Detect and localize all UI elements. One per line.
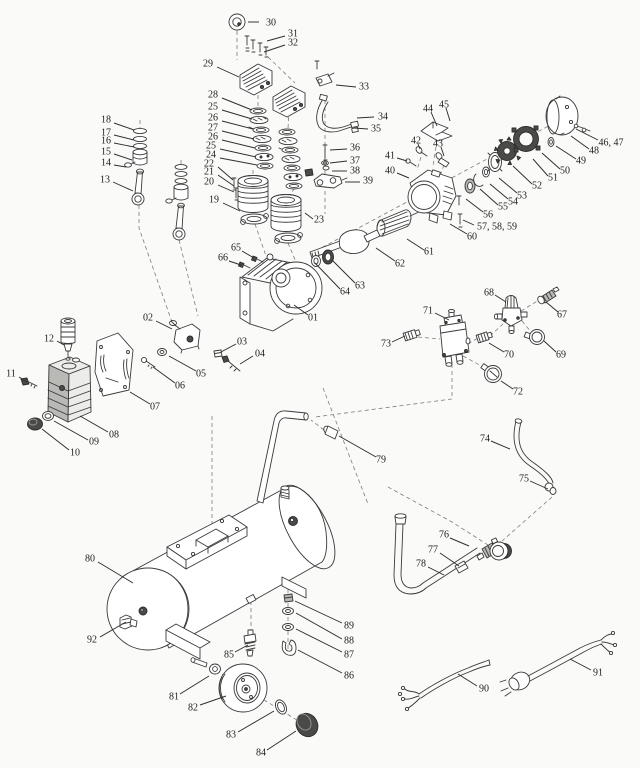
part-label: 12 xyxy=(44,333,54,344)
part-label: 04 xyxy=(255,348,265,359)
part-label: 07 xyxy=(150,401,160,412)
part-10-cap xyxy=(28,418,43,430)
part-03-nut xyxy=(214,350,222,357)
leader-line-20 xyxy=(218,185,234,192)
leader-line-63 xyxy=(332,260,355,283)
part-label: 48 xyxy=(589,145,599,156)
part-label: 45 xyxy=(439,99,449,110)
leader-line-36 xyxy=(330,149,347,150)
part-label: 03 xyxy=(237,336,247,347)
parts-20-21-22-bolts xyxy=(232,178,238,200)
tank-top-port xyxy=(281,486,289,499)
part-label: 71 xyxy=(423,305,433,316)
part-33-elbow-fitting xyxy=(315,61,334,86)
part-label: 06 xyxy=(175,380,185,391)
part-label: 74 xyxy=(480,433,490,444)
leader-line-53 xyxy=(499,178,517,193)
leader-line-90 xyxy=(458,674,477,686)
part-label: 65 xyxy=(231,242,241,253)
part-label: 76 xyxy=(439,529,449,540)
part-label: 53 xyxy=(517,190,527,201)
leader-line-49 xyxy=(556,146,576,159)
part-label: 75 xyxy=(519,473,529,484)
part-label: 54 xyxy=(508,196,518,207)
part-label: 25 xyxy=(208,101,218,112)
part-06-screw xyxy=(141,357,155,368)
part-02-bearing-block xyxy=(170,321,201,354)
part-label: 81 xyxy=(169,691,179,702)
part-label: 08 xyxy=(109,429,119,440)
part-label: 10 xyxy=(70,447,80,458)
part-04-bolt xyxy=(222,356,240,371)
part-label: 61 xyxy=(424,246,434,257)
part-05-washer xyxy=(158,349,167,356)
part-07-backing-plate xyxy=(95,333,133,396)
part-12-air-filter xyxy=(61,318,75,360)
leader-line-26 xyxy=(222,121,253,129)
leader-line-72 xyxy=(501,381,513,389)
leader-line-56 xyxy=(466,199,483,212)
leader-line-21 xyxy=(218,175,234,186)
part-73-fitting xyxy=(403,328,421,341)
part-label: 14 xyxy=(101,157,111,168)
leader-line-52 xyxy=(513,166,532,184)
leader-line-32 xyxy=(264,45,285,52)
part-label: 83 xyxy=(226,729,236,740)
part-label: 64 xyxy=(340,286,350,297)
part-label: 90 xyxy=(479,683,489,694)
part-09-o-ring xyxy=(43,412,54,421)
leader-line-74 xyxy=(491,441,510,449)
part-label: 77 xyxy=(428,544,438,555)
leader-line-07 xyxy=(130,392,150,404)
leader-line-81 xyxy=(180,676,209,694)
leader-line-19 xyxy=(223,203,240,211)
leader-line-29 xyxy=(217,67,239,77)
part-label: 79 xyxy=(376,454,386,465)
part-label: 39 xyxy=(363,175,373,186)
part-label: 28 xyxy=(208,89,218,100)
part-label: 13 xyxy=(100,174,110,185)
part-label: 16 xyxy=(101,135,111,146)
leader-line-77 xyxy=(440,553,459,566)
part-label: 35 xyxy=(371,123,381,134)
part-label: 60 xyxy=(467,231,477,242)
part-83-retainer-ring xyxy=(273,698,288,716)
part-39-manifold xyxy=(314,174,347,188)
leader-line-24 xyxy=(220,158,257,165)
part-label: 85 xyxy=(224,649,234,660)
part-label: 63 xyxy=(355,280,365,291)
part-label: 43 xyxy=(433,138,443,149)
part-label: 51 xyxy=(548,172,558,183)
leader-line-86 xyxy=(298,650,342,673)
parts-76-77-78-hose xyxy=(394,514,512,594)
piston-group-front xyxy=(125,128,147,205)
leader-line-85 xyxy=(235,645,248,652)
leader-line-68 xyxy=(495,295,506,302)
part-label: 72 xyxy=(513,386,523,397)
leader-line-70 xyxy=(489,343,504,352)
leader-line-60 xyxy=(450,224,467,234)
part-label: 89 xyxy=(344,620,354,631)
part-91-cord-with-plug xyxy=(500,631,617,696)
part-84-hub-cap xyxy=(292,709,322,740)
parts-86-89-fastener-stack xyxy=(282,594,296,655)
part-48-end-cover xyxy=(546,96,578,135)
parts-31-32-bolts xyxy=(245,36,268,57)
leader-line-33 xyxy=(336,85,356,87)
part-81-washer xyxy=(210,664,221,674)
part-72-gauge xyxy=(481,364,502,383)
leader-line-48 xyxy=(571,136,589,149)
part-label: 80 xyxy=(85,553,95,564)
part-label: 34 xyxy=(378,111,388,122)
part-41-screw xyxy=(406,159,416,166)
part-68-regulator xyxy=(494,296,527,334)
leader-line-57-58-59 xyxy=(463,220,474,225)
leader-line-23 xyxy=(305,213,313,219)
part-64-washer xyxy=(312,256,321,267)
leader-line-03 xyxy=(221,344,236,352)
leader-line-54 xyxy=(490,184,508,199)
leader-line-87 xyxy=(296,629,342,652)
leader-line-25 xyxy=(220,149,256,157)
part-label: 55 xyxy=(498,201,508,212)
leader-line-76 xyxy=(450,538,469,546)
part-label: 91 xyxy=(593,667,603,678)
part-label: 05 xyxy=(196,368,206,379)
part-label: 42 xyxy=(411,135,421,146)
part-08-cylinder-head xyxy=(48,357,91,422)
leader-line-46-47 xyxy=(576,129,598,140)
part-label: 52 xyxy=(532,180,542,191)
part-61-rotor xyxy=(377,210,419,236)
leader-line-51 xyxy=(533,159,548,176)
part-label: 82 xyxy=(188,702,198,713)
leader-line-80 xyxy=(98,562,133,583)
valve-plate-stack-rear xyxy=(279,129,302,189)
part-label: 87 xyxy=(344,649,354,660)
part-label: 78 xyxy=(416,558,426,569)
leader-line-37 xyxy=(330,161,347,163)
leader-line-62 xyxy=(376,248,395,261)
part-29-head-cover-rear xyxy=(273,86,305,117)
part-label: 57, 58, 59 xyxy=(477,221,517,232)
leader-line-22 xyxy=(218,167,233,180)
leader-line-40 xyxy=(397,173,409,178)
leader-line-31 xyxy=(267,36,285,41)
part-label: 66 xyxy=(218,252,228,263)
leader-line-91 xyxy=(570,659,591,670)
part-label: 92 xyxy=(87,634,97,645)
leader-line-69 xyxy=(544,341,556,352)
leader-line-05 xyxy=(169,356,196,371)
part-label: 19 xyxy=(209,194,219,205)
part-67-fitting xyxy=(536,287,559,305)
part-label: 67 xyxy=(557,309,567,320)
part-label: 84 xyxy=(256,747,266,758)
parts-34-35-discharge-pipes xyxy=(317,94,359,132)
leader-line-61 xyxy=(407,239,424,250)
part-label: 46, 47 xyxy=(599,137,624,148)
part-label: 30 xyxy=(266,17,276,28)
part-30-cap xyxy=(229,14,245,30)
leader-line-84 xyxy=(267,731,296,750)
part-label: 44 xyxy=(423,103,433,114)
part-80-tank xyxy=(107,477,346,650)
leader-line-15 xyxy=(114,154,132,160)
part-stator-ring xyxy=(512,126,540,152)
part-label: 18 xyxy=(101,114,111,125)
part-label: 09 xyxy=(89,436,99,447)
part-label: 41 xyxy=(385,150,395,161)
part-label: 40 xyxy=(385,165,395,176)
part-label: 33 xyxy=(359,81,369,92)
leader-line-04 xyxy=(240,356,253,364)
leader-line-83 xyxy=(238,711,274,732)
part-label: 68 xyxy=(484,287,494,298)
part-62-crankshaft xyxy=(310,230,380,258)
part-69-gauge xyxy=(524,330,544,345)
part-label: 49 xyxy=(576,155,586,166)
part-29-head-cover-front xyxy=(240,64,272,95)
leader-line-34 xyxy=(357,117,374,118)
part-label: 01 xyxy=(308,312,318,323)
part-label: 73 xyxy=(381,338,391,349)
part-label: 56 xyxy=(483,209,493,220)
leader-line-28 xyxy=(222,98,252,110)
leader-line-08 xyxy=(80,416,108,432)
leader-line-41 xyxy=(397,158,407,161)
part-70-fitting xyxy=(476,331,493,343)
leader-line-18 xyxy=(114,123,134,130)
part-label: 02 xyxy=(143,312,153,323)
leader-line-73 xyxy=(392,336,405,342)
part-label: 50 xyxy=(560,165,570,176)
part-label: 62 xyxy=(395,258,405,269)
leader-line-10 xyxy=(42,429,69,450)
leader-line-89 xyxy=(295,601,342,623)
leader-line-09 xyxy=(54,421,88,440)
part-label: 11 xyxy=(6,368,16,379)
leader-line-27 xyxy=(222,131,254,139)
part-label: 88 xyxy=(344,635,354,646)
leader-line-88 xyxy=(296,613,342,639)
part-label: 23 xyxy=(314,214,324,225)
leader-line-16 xyxy=(114,143,134,147)
leader-line-65 xyxy=(242,251,254,258)
part-label: 32 xyxy=(288,37,298,48)
leader-line-06 xyxy=(153,367,175,383)
leader-line-50 xyxy=(542,153,560,169)
piston-group-rear xyxy=(166,165,188,240)
part-82-wheel xyxy=(219,664,267,712)
diagram-page: Air compressor exploded parts view xyxy=(0,0,640,768)
part-label: 15 xyxy=(101,146,111,157)
leader-line-71 xyxy=(435,313,449,320)
part-label: 69 xyxy=(556,349,566,360)
part-63-bearing xyxy=(323,250,334,264)
part-label: 86 xyxy=(344,670,354,681)
leader-line-55 xyxy=(480,189,498,205)
part-79-handle-grip xyxy=(323,425,338,439)
part-label: 36 xyxy=(350,142,360,153)
leader-line-79 xyxy=(339,436,376,457)
leader-line-13 xyxy=(113,182,133,191)
part-label: 70 xyxy=(504,349,514,360)
part-23-cylinder-rear xyxy=(271,195,302,244)
part-label: 38 xyxy=(350,165,360,176)
exploded-parts-diagram: Air compressor exploded parts view xyxy=(0,0,640,768)
part-label: 20 xyxy=(204,176,214,187)
part-19-cylinder-front xyxy=(238,176,268,225)
leader-line-17 xyxy=(114,135,134,140)
leader-line-26 xyxy=(222,140,255,148)
leader-line-25 xyxy=(222,110,252,119)
part-label: 29 xyxy=(203,58,213,69)
part-40-motor-housing xyxy=(408,170,456,223)
